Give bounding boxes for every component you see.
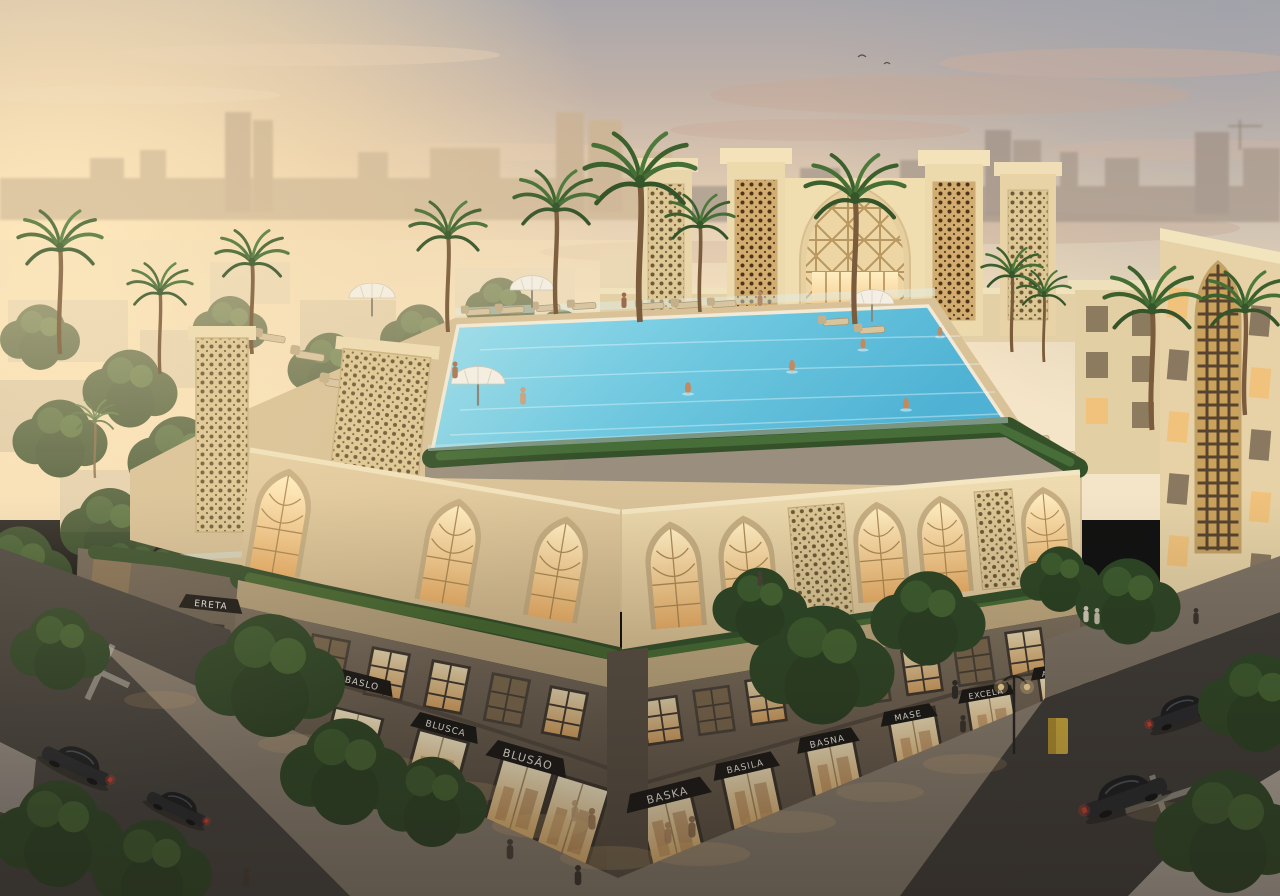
- scene-illustration: BASRA ERETA BASLO BLUSCA BLUSÃO BASKA BA…: [0, 0, 1280, 896]
- rendering-canvas: BASRA ERETA BASLO BLUSCA BLUSÃO BASKA BA…: [0, 0, 1280, 896]
- warm-grade-overlay: [0, 0, 1280, 896]
